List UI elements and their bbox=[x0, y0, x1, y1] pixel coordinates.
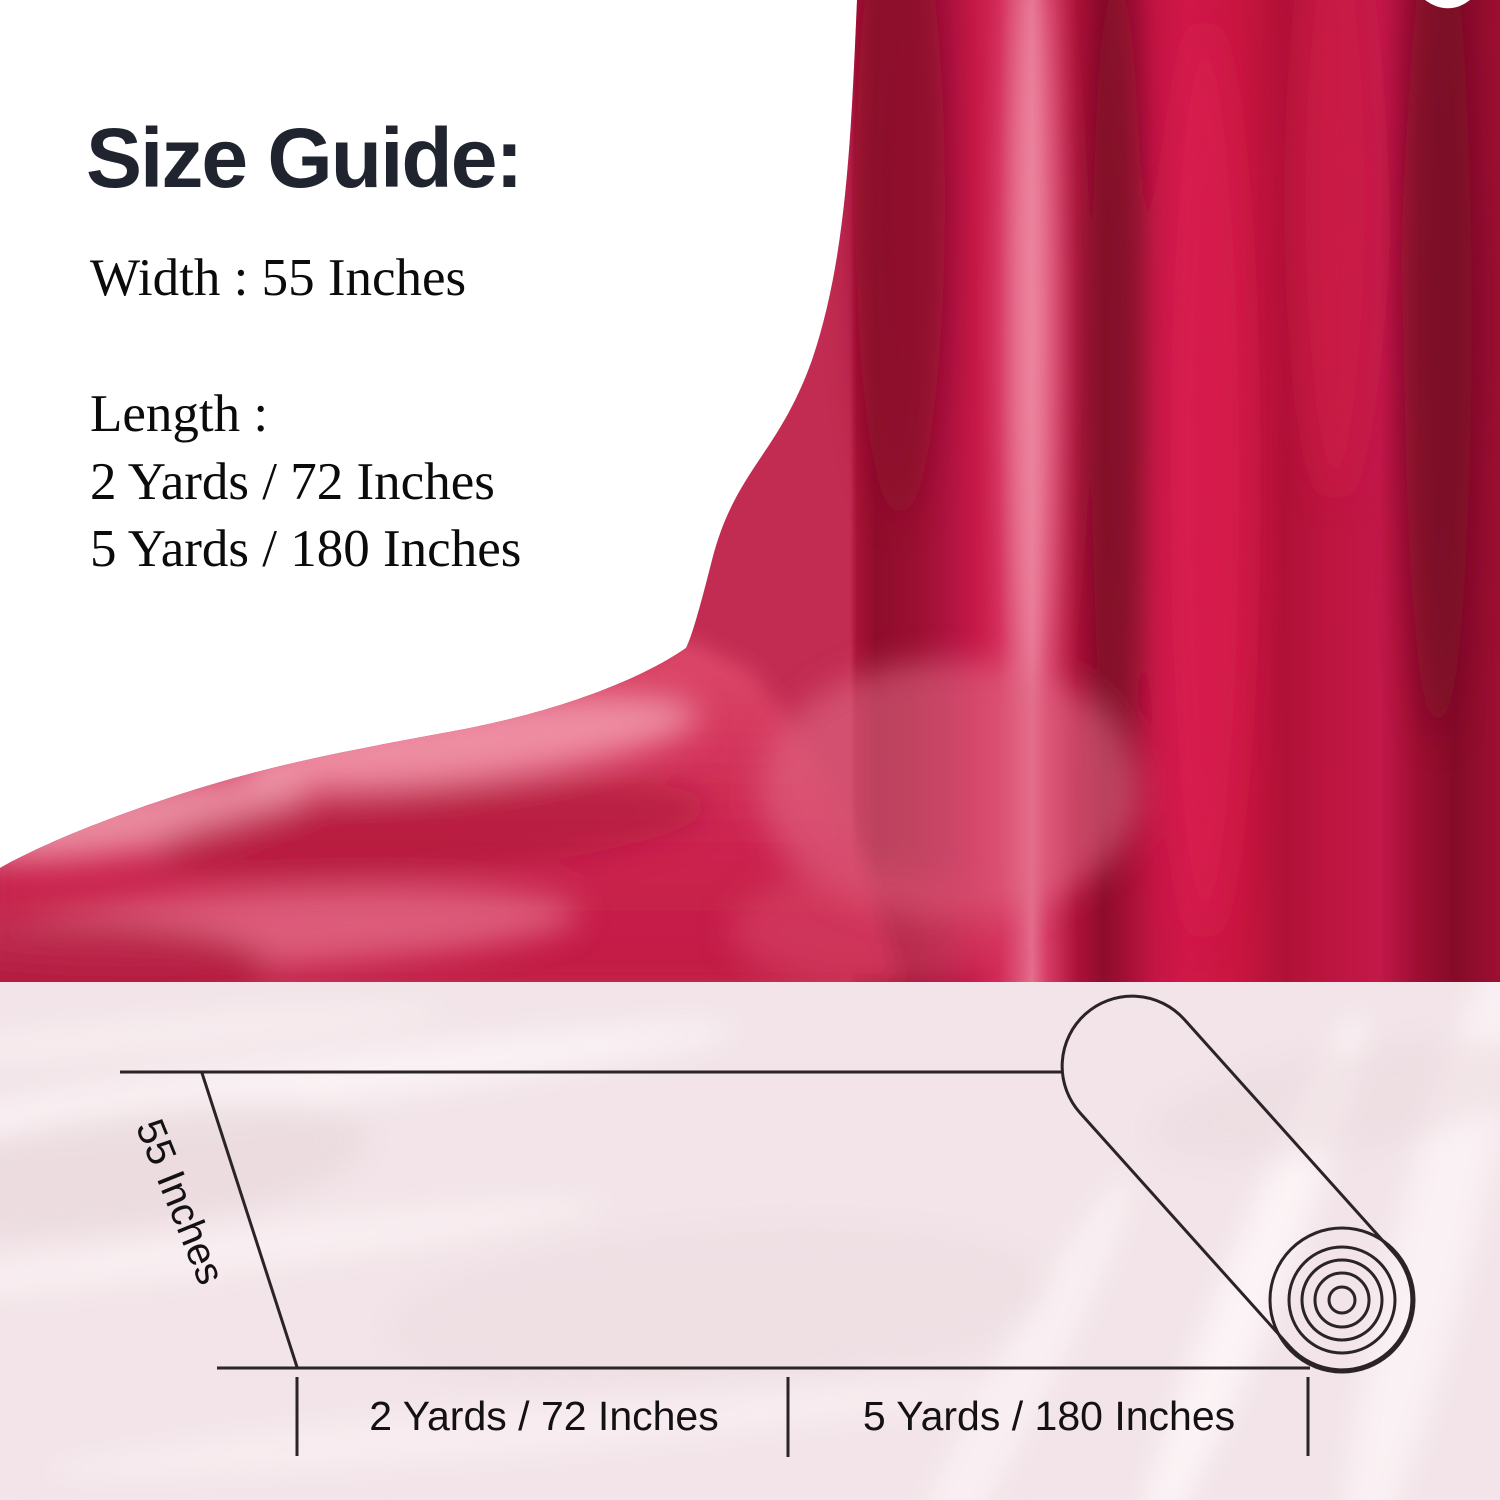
length-option-1-text: 2 Yards / 72 Inches bbox=[90, 452, 495, 513]
diagram-segment-label-1: 2 Yards / 72 Inches bbox=[300, 1396, 788, 1437]
page-title: Size Guide: bbox=[86, 116, 521, 200]
length-option-2-text: 5 Yards / 180 Inches bbox=[90, 519, 521, 580]
width-spec-text: Width : 55 Inches bbox=[90, 248, 466, 309]
length-spec-heading: Length : bbox=[90, 384, 268, 445]
product-size-guide-image: Size Guide: Width : 55 Inches Length : 2… bbox=[0, 0, 1500, 1500]
diagram-segment-label-2: 5 Yards / 180 Inches bbox=[790, 1396, 1308, 1437]
